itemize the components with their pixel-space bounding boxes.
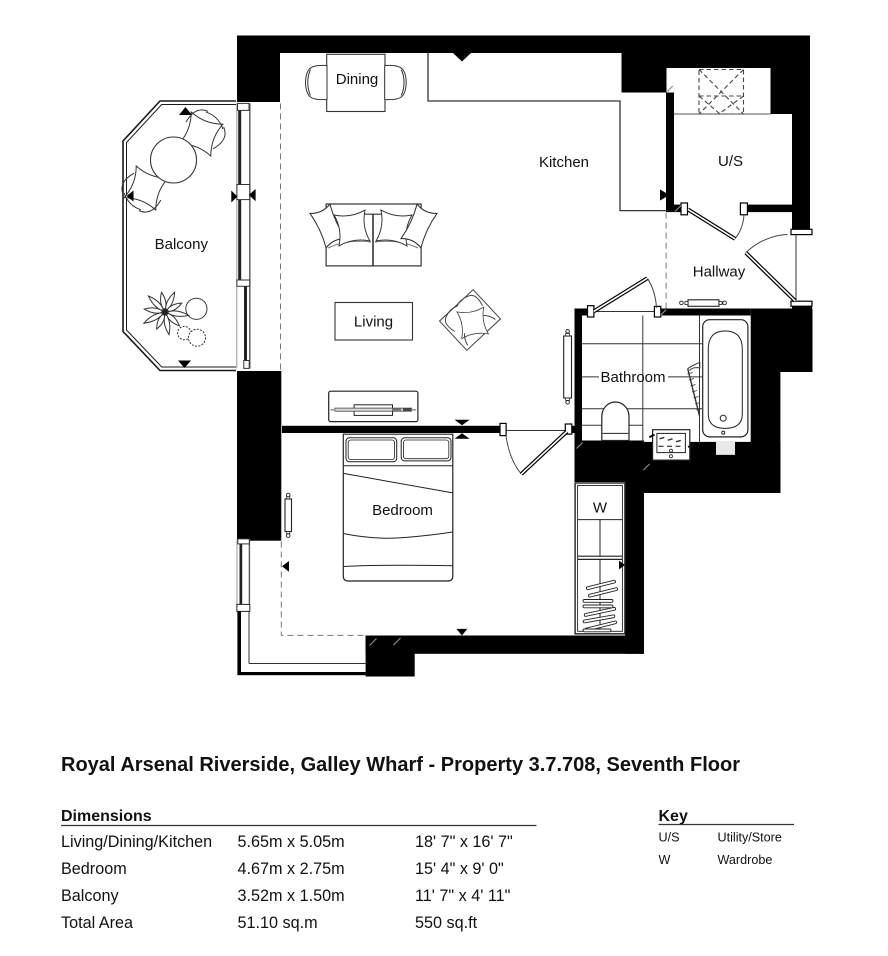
svg-text:15' 4" x 9' 0": 15' 4" x 9' 0" [415, 860, 504, 878]
svg-text:Bathroom: Bathroom [600, 369, 665, 386]
svg-text:Balcony: Balcony [155, 236, 209, 253]
svg-text:3.52m x 1.50m: 3.52m x 1.50m [238, 887, 345, 905]
svg-text:Bedroom: Bedroom [372, 502, 433, 519]
svg-text:Royal Arsenal Riverside, Galle: Royal Arsenal Riverside, Galley Wharf - … [61, 754, 740, 776]
svg-text:Bedroom: Bedroom [61, 860, 127, 878]
svg-text:U/S: U/S [659, 831, 680, 845]
svg-text:5.65m x 5.05m: 5.65m x 5.05m [238, 833, 345, 851]
svg-text:550 sq.ft: 550 sq.ft [415, 914, 478, 932]
svg-text:11' 7" x 4' 11": 11' 7" x 4' 11" [415, 887, 511, 905]
svg-text:Kitchen: Kitchen [539, 154, 589, 171]
svg-text:W: W [593, 500, 608, 517]
svg-text:18' 7" x 16' 7": 18' 7" x 16' 7" [415, 833, 513, 851]
svg-text:Living/Dining/Kitchen: Living/Dining/Kitchen [61, 833, 212, 851]
svg-text:W: W [659, 853, 671, 867]
svg-text:Balcony: Balcony [61, 887, 119, 905]
svg-text:U/S: U/S [718, 153, 743, 170]
svg-text:4.67m x 2.75m: 4.67m x 2.75m [238, 860, 345, 878]
svg-text:Dimensions: Dimensions [61, 808, 152, 825]
svg-text:Dining: Dining [336, 71, 379, 88]
svg-text:51.10 sq.m: 51.10 sq.m [238, 914, 318, 932]
svg-text:Total Area: Total Area [61, 914, 133, 932]
svg-text:Living: Living [354, 314, 393, 331]
svg-text:Key: Key [659, 808, 688, 825]
svg-text:Hallway: Hallway [693, 264, 746, 281]
svg-text:Utility/Store: Utility/Store [718, 831, 782, 845]
svg-text:Wardrobe: Wardrobe [718, 853, 773, 867]
